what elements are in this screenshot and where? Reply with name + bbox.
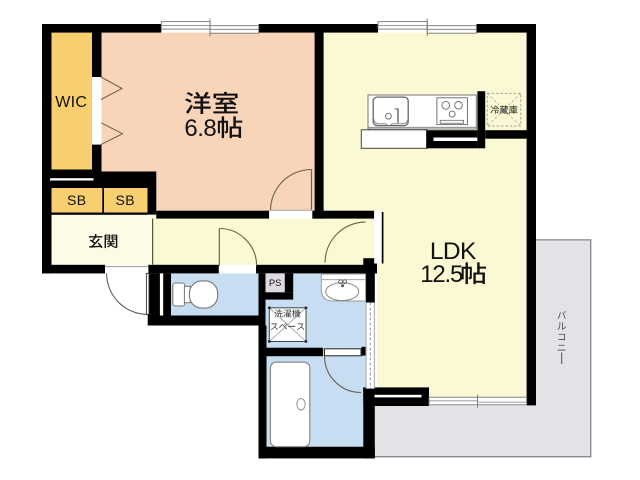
svg-text:WIC: WIC (55, 94, 87, 111)
svg-text:12.5: 12.5 (420, 261, 463, 288)
svg-text:6.8: 6.8 (184, 115, 216, 142)
svg-text:SB: SB (67, 192, 87, 208)
svg-text:PS: PS (269, 277, 282, 288)
svg-text:SB: SB (115, 192, 135, 208)
